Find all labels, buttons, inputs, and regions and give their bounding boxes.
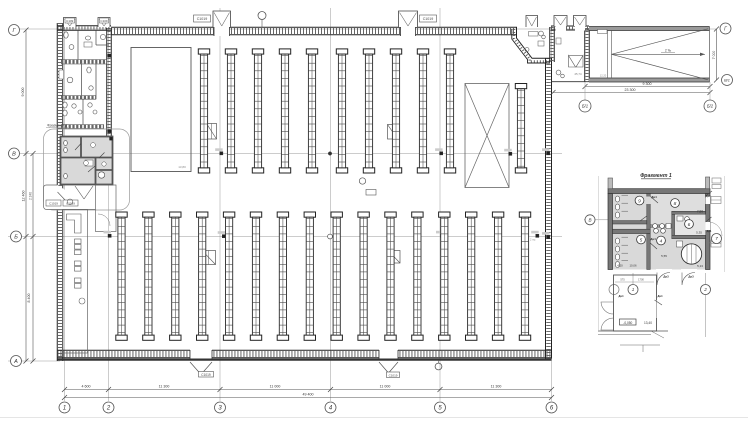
svg-text:Дв4: Дв4 [650,237,656,241]
svg-text:5,35: 5,35 [696,231,702,235]
svg-text:В: В [588,217,591,222]
svg-text:9: 9 [638,198,641,204]
svg-text:9 300: 9 300 [643,82,652,86]
svg-text:Б/2: Б/2 [707,104,714,109]
svg-text:-0,050: -0,050 [623,321,632,325]
svg-text:575: 575 [620,278,625,282]
svg-text:Дв3: Дв3 [663,275,669,279]
svg-text:4 600: 4 600 [82,385,91,389]
svg-text:Дв3: Дв3 [688,275,694,279]
svg-text:2 ‰: 2 ‰ [665,49,672,53]
svg-text:2 яр.: 2 яр. [530,238,536,242]
svg-text:С1019: С1019 [389,373,398,377]
svg-text:7,80: 7,80 [697,210,703,214]
svg-text:1700: 1700 [638,278,644,282]
svg-text:12,20: 12,20 [600,74,607,78]
svg-text:13,40: 13,40 [644,321,652,325]
svg-text:С1019: С1019 [49,202,58,206]
svg-text:2: 2 [106,406,111,412]
svg-text:Дв1: Дв1 [707,229,712,233]
svg-text:11 000: 11 000 [270,385,281,389]
svg-text:Б/1: Б/1 [582,104,588,109]
svg-text:23 300: 23 300 [625,88,636,92]
svg-text:А: А [13,359,18,365]
svg-text:В: В [12,151,16,157]
svg-text:Дв4: Дв4 [651,195,657,199]
svg-text:10,06: 10,06 [630,264,637,268]
svg-text:1: 1 [63,406,66,412]
svg-text:С1019: С1019 [197,17,208,21]
svg-text:8 400: 8 400 [27,294,31,303]
svg-text:С109: С109 [66,19,74,23]
svg-text:2: 2 [703,287,707,292]
svg-text:Дв4: Дв4 [658,294,663,298]
svg-text:8: 8 [674,201,677,207]
svg-text:В/1: В/1 [724,78,730,82]
svg-text:Дв4: Дв4 [619,294,624,298]
svg-text:49 400: 49 400 [303,393,314,397]
svg-text:2 240: 2 240 [29,192,33,200]
svg-text:С1019: С1019 [201,373,211,377]
svg-text:С109: С109 [100,19,108,23]
svg-text:13,80: 13,80 [178,165,186,169]
svg-text:12 460: 12 460 [22,191,26,202]
svg-text:7 000: 7 000 [712,51,716,60]
svg-text:7: 7 [715,236,718,241]
svg-text:Фрагмент 1: Фрагмент 1 [47,124,67,128]
svg-text:Б: Б [14,234,18,240]
svg-text:11 300: 11 300 [491,385,502,389]
svg-text:5,13: 5,13 [697,264,703,268]
svg-text:5,55: 5,55 [661,254,667,258]
svg-text:4,20: 4,20 [617,264,623,268]
svg-text:11 300: 11 300 [159,385,170,389]
svg-text:11 000: 11 000 [380,385,391,389]
svg-text:С1019: С1019 [423,17,434,21]
svg-text:4: 4 [660,238,663,244]
svg-text:9 000: 9 000 [21,88,25,97]
svg-text:6: 6 [688,222,691,228]
svg-text:25,74: 25,74 [575,72,582,76]
svg-text:Дв2: Дв2 [705,194,711,198]
svg-text:Фрагмент 1: Фрагмент 1 [640,173,672,179]
svg-text:1: 1 [632,287,635,292]
svg-text:5: 5 [640,237,643,243]
